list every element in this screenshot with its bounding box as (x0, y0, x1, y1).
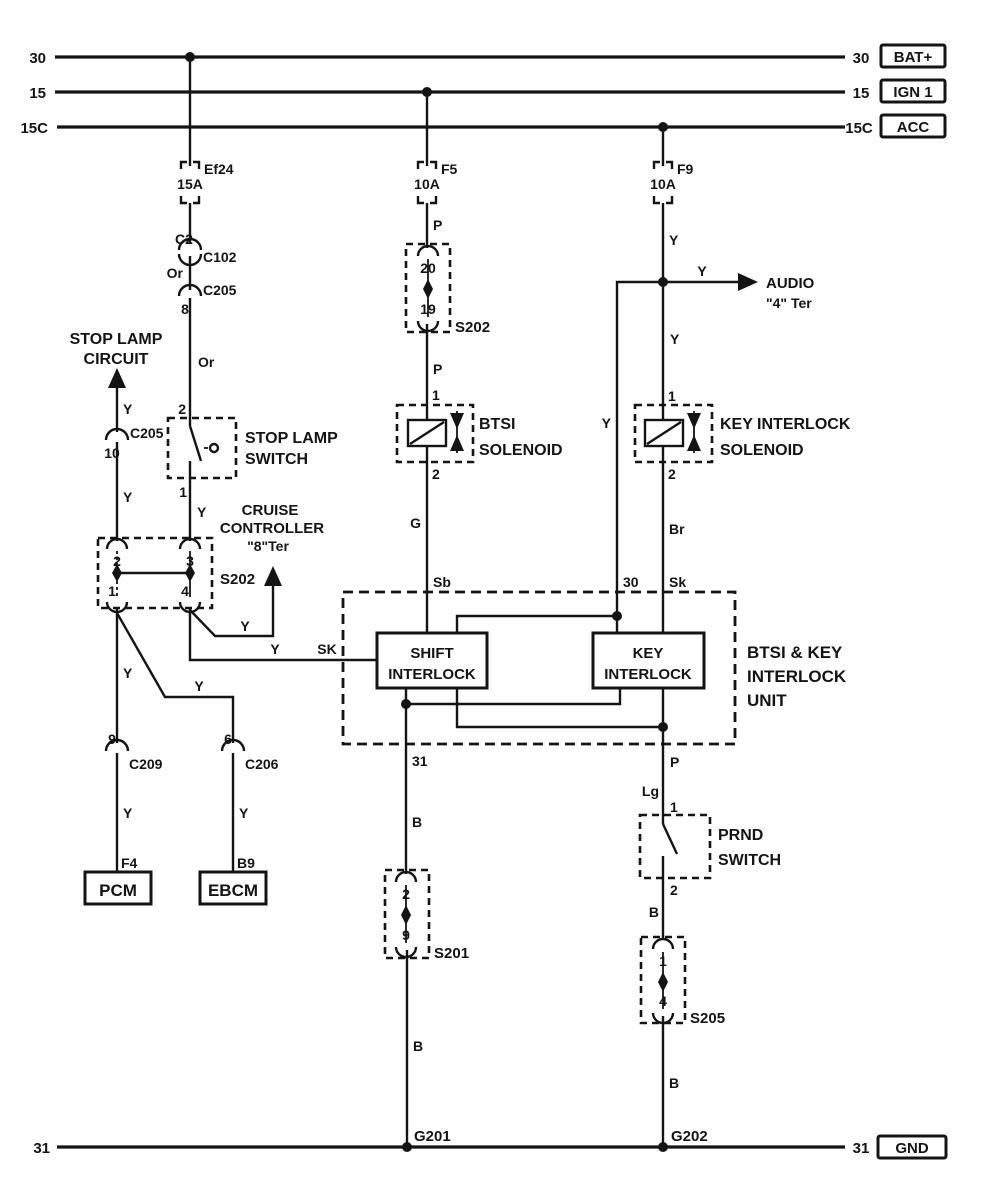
key-pin-2-label: 2 (668, 466, 676, 482)
unit-name-2: INTERLOCK (747, 667, 847, 686)
splice-s205-name: S205 (690, 1010, 725, 1027)
cruise-name-3: "8"Ter (247, 538, 289, 554)
shift-interlock-label-2: INTERLOCK (388, 666, 476, 683)
splice-pin-9: 9 (402, 927, 410, 943)
prnd-pin-2-label: 2 (670, 882, 678, 898)
splice-pin-4: 4 (659, 993, 667, 1009)
acc-tag-label: ACC (897, 119, 930, 136)
pin-8-label: 8 (181, 301, 189, 317)
btsi-name-1: BTSI (479, 416, 515, 433)
pin-b9-label: B9 (237, 855, 255, 871)
connector-c209-label: C209 (129, 756, 163, 772)
wire-b-1-label: B (412, 814, 422, 830)
btsi-name-2: SOLENOID (479, 442, 563, 459)
key-name-1: KEY INTERLOCK (720, 416, 851, 433)
bus-31-left-label: 31 (33, 1140, 50, 1157)
fuse-f9-rating: 10A (650, 176, 676, 192)
splice-arrow-icon (423, 279, 433, 299)
ign1-tag-label: IGN 1 (893, 84, 932, 101)
btsi-pin-2-label: 2 (432, 466, 440, 482)
stop-lamp-circuit-branch: STOP LAMP CIRCUIT Y C205 10 Y (70, 331, 164, 541)
ground-g201-label: G201 (414, 1128, 451, 1145)
splice-s202-mid-name: S202 (455, 319, 490, 336)
cruise-name-2: CONTROLLER (220, 520, 324, 537)
fuse-ef24: Ef24 15A (177, 57, 234, 243)
ground-g202-label: G202 (671, 1128, 708, 1145)
cruise-name-1: CRUISE (242, 502, 299, 519)
fuse-ef24-name: Ef24 (204, 161, 234, 177)
stop-lamp-feed: C2 C102 Or C205 8 Or 2 STOP LAMP SWITCH … (167, 231, 338, 541)
wire-br-label: Br (669, 521, 685, 537)
connector-c206-label: C206 (245, 756, 279, 772)
wire-or-1-label: Or (167, 265, 184, 281)
suppression-diode-icon (450, 411, 464, 453)
unit-30-branch: Y 30 (602, 282, 663, 634)
stop-lamp-switch-box (168, 418, 236, 478)
shift-interlock-label-1: SHIFT (410, 645, 453, 662)
wire-y-1-label: Y (669, 232, 679, 248)
audio-branch: Y AUDIO "4" Ter (663, 263, 815, 311)
stop-lamp-switch-name-2: SWITCH (245, 451, 308, 468)
fuse-f5-name: F5 (441, 161, 458, 177)
solenoid-coil-icon (408, 420, 446, 446)
bus-15-right-label: 15 (853, 85, 870, 102)
bus-15-left-label: 15 (29, 85, 46, 102)
splice-s202-left: 2 3 1 4 S202 (98, 538, 255, 612)
unit-pin-31-label: 31 (412, 753, 428, 769)
unit-pin-p-label: P (670, 754, 679, 770)
power-buses: 30 15 15C 31 30 15 15C 31 BAT+ IGN 1 ACC… (20, 45, 946, 1158)
fuse-f5-rating: 10A (414, 176, 440, 192)
up-arrow-icon (108, 368, 126, 388)
gnd-tag-label: GND (895, 1140, 929, 1157)
shift-feed-wire: Y SK (190, 607, 377, 660)
wire-y-label: Y (197, 504, 207, 520)
prnd-branch: Lg 1 PRND SWITCH 2 B (640, 744, 781, 940)
wire-sb-label: Sb (433, 574, 451, 590)
wire-y-top-label: Y (123, 401, 133, 417)
branch-wire-y-label: Y (602, 415, 612, 431)
shift-feed-y-label: Y (270, 641, 280, 657)
solenoid-coil-icon (645, 420, 683, 446)
wiring-diagram-page: 30 15 15C 31 30 15 15C 31 BAT+ IGN 1 ACC… (0, 0, 982, 1184)
bus-15c-right-label: 15C (845, 120, 873, 137)
pcm-wire-y-2: Y (123, 805, 133, 821)
connector-c205-label-2: C205 (130, 425, 164, 441)
pin-f4-label: F4 (121, 855, 138, 871)
suppression-diode-icon (687, 411, 701, 453)
bus-31-right-label: 31 (853, 1140, 870, 1157)
audio-wire-y-label: Y (697, 263, 707, 279)
splice-pin-1: 1 (108, 583, 116, 599)
key-column: Y Y AUDIO "4" Ter Y 30 Y 1 KEY INTERLOCK… (602, 232, 851, 634)
key-interlock-label-1: KEY (633, 645, 664, 662)
btsi-pin-1-label: 1 (432, 387, 440, 403)
cruise-wire-y-label: Y (240, 618, 250, 634)
splice-pin-4: 4 (181, 583, 189, 599)
stop-lamp-switch-symbol (190, 418, 218, 478)
pin-2-label: 2 (178, 401, 186, 417)
connector-c205-label: C205 (203, 282, 237, 298)
pin-1-label: 1 (179, 484, 187, 500)
wire-or-2-label: Or (198, 354, 215, 370)
prnd-switch-box (640, 815, 710, 878)
audio-terminal: "4" Ter (766, 295, 812, 311)
splice-s202-left-name: S202 (220, 571, 255, 588)
bus-15c-left-label: 15C (20, 120, 48, 137)
wire-y-2-label: Y (670, 331, 680, 347)
wire-lg-label: Lg (642, 783, 659, 799)
wire-y-bottom-label: Y (123, 489, 133, 505)
shift-feed-sk-label: SK (317, 641, 336, 657)
bat-tag-label: BAT+ (894, 49, 933, 66)
wire-b-label: B (669, 1075, 679, 1091)
bus-30-left-label: 30 (29, 50, 46, 67)
stop-lamp-circuit-name-2: CIRCUIT (84, 351, 149, 368)
splice-pin-19: 19 (420, 301, 436, 317)
splice-arrow-icon (658, 972, 668, 992)
wire-p-2-label: P (433, 361, 442, 377)
prnd-pin-1-label: 1 (670, 799, 678, 815)
prnd-name-1: PRND (718, 827, 763, 844)
pcm-branch: Y 9 C209 Y F4 PCM (85, 607, 163, 904)
unit-name-1: BTSI & KEY (747, 643, 843, 662)
wiring-diagram: 30 15 15C 31 30 15 15C 31 BAT+ IGN 1 ACC… (0, 0, 982, 1184)
right-arrow-icon (738, 273, 758, 291)
key-name-2: SOLENOID (720, 442, 804, 459)
key-pin-1-label: 1 (668, 388, 676, 404)
wire-p-1-label: P (433, 217, 442, 233)
splice-s201-name: S201 (434, 945, 469, 962)
stop-lamp-circuit-name-1: STOP LAMP (70, 331, 163, 348)
pcm-wire-y-1: Y (123, 665, 133, 681)
ground-path-right: 1 4 S205 B G202 (641, 937, 725, 1147)
up-arrow-icon (264, 566, 282, 586)
prnd-name-2: SWITCH (718, 852, 781, 869)
wire-sk-label: Sk (669, 574, 686, 590)
connector-c2-label: C2 (175, 231, 193, 247)
key-interlock-label-2: INTERLOCK (604, 666, 692, 683)
ebcm-wire-y-1: Y (194, 678, 204, 694)
interlock-unit: SHIFT INTERLOCK KEY INTERLOCK BTSI & KEY… (343, 592, 847, 770)
prnd-wire-b-label: B (649, 904, 659, 920)
wire-g-label: G (410, 515, 421, 531)
fuse-f9: F9 10A (650, 127, 693, 282)
ebcm-wire-y-2: Y (239, 805, 249, 821)
prnd-switch-symbol (663, 815, 677, 878)
cruise-branch: CRUISE CONTROLLER "8"Ter Y (190, 502, 324, 636)
pcm-label: PCM (99, 881, 137, 900)
connector-c102-label: C102 (203, 249, 237, 265)
ebcm-label: EBCM (208, 881, 258, 900)
fuse-f9-name: F9 (677, 161, 694, 177)
stop-lamp-switch-name-1: STOP LAMP (245, 430, 338, 447)
audio-name: AUDIO (766, 275, 815, 292)
wire-b-2-label: B (413, 1038, 423, 1054)
bus-30-right-label: 30 (853, 50, 870, 67)
fuse-ef24-rating: 15A (177, 176, 203, 192)
btsi-column: P 20 19 S202 P 1 BTSI SOLENOID 2 G Sb (397, 217, 563, 633)
unit-name-3: UNIT (747, 691, 787, 710)
ground-path-left: B 2 9 S201 B G201 (385, 744, 469, 1147)
branch-pin-30-label: 30 (623, 574, 639, 590)
splice-arrow-icon (401, 905, 411, 925)
